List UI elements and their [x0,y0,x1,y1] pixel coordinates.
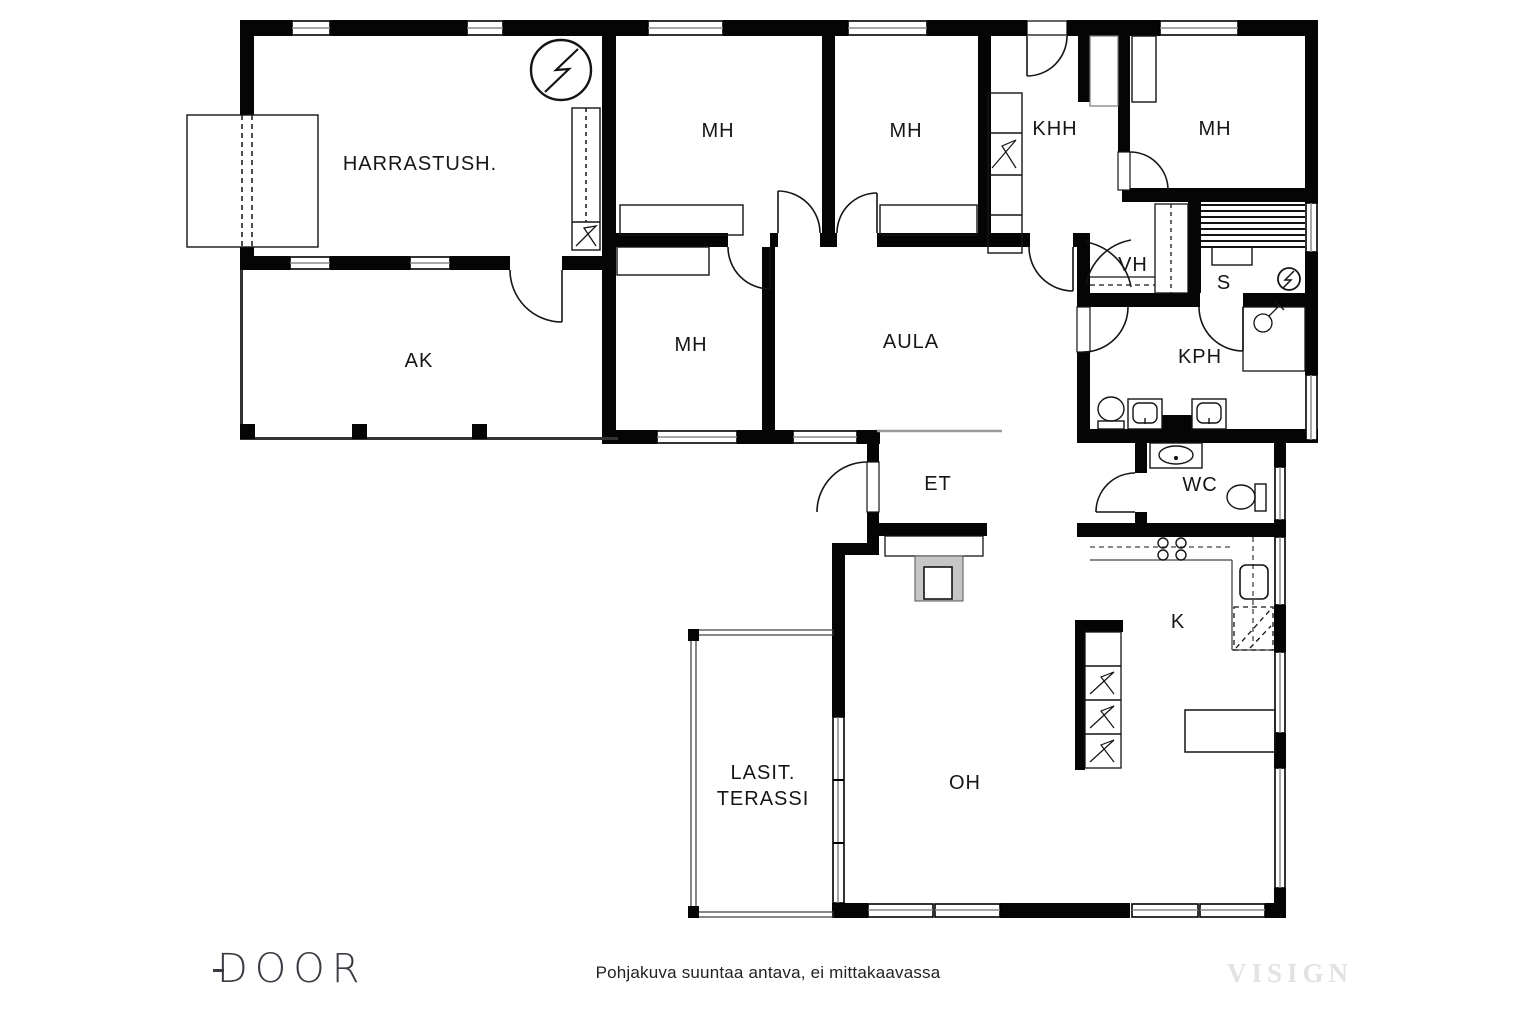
terrace-corner-posts-part [688,629,699,641]
walls-part [978,36,991,233]
walls-part [330,20,467,36]
label-khh: KHH [1032,118,1077,140]
stove-icon-part [1176,550,1186,560]
masonry-heater [1075,620,1123,770]
room-labels: HARRASTUSH. MH MH KHH MH VH S AK MH AULA… [343,118,1232,810]
walls-part [330,256,410,270]
wc-toilet-icon [1227,484,1266,511]
walls-part [1067,20,1160,36]
masonry-heater-part [1090,706,1114,728]
wc-sink-icon-part [1159,446,1193,464]
walls-part [1073,233,1090,247]
masonry-heater-part [1085,632,1121,666]
walls-part [877,523,987,536]
door-et-entrance-part [817,462,867,512]
label-aula: AULA [883,331,939,353]
wc-sink-icon [1150,443,1202,468]
door-mh2-part [837,193,877,233]
fireplace [885,536,983,601]
masonry-heater-part-part [1075,632,1085,770]
door-harrastush-ak-part [510,270,562,322]
walls-part [1188,202,1201,293]
walls-part [1000,903,1130,918]
walls-part [822,36,835,233]
sauna-stove-icon [1278,268,1300,290]
door-kph-part [1077,307,1090,352]
glazed-terrace-part [691,912,833,917]
walls-part [857,430,880,444]
carport-posts-part [240,424,255,439]
walls-part [832,903,868,918]
door-wc-part [1096,473,1135,512]
sauna-stove-icon-part [1283,271,1294,288]
door-wc [1096,473,1135,512]
label-mh2: MH [889,120,922,142]
carport-left-edge [240,270,243,440]
oh-table [1185,710,1275,752]
masonry-heater-part-part [1075,620,1123,632]
stove-icon [1158,538,1186,560]
walls-part [602,20,616,444]
door-sauna [1199,307,1243,351]
chimney-flue [572,108,600,250]
carport-posts-part [352,424,367,439]
wardrobe-mh2 [880,205,977,235]
walls-part [762,247,775,444]
label-ak: AK [405,350,434,372]
khh-appliance-tower-part [992,140,1016,168]
label-terassi-2: TERASSI [717,788,810,810]
sauna-benches [1201,205,1305,265]
label-vh: VH [1118,254,1148,276]
door-khh-aula [1029,247,1073,291]
kph-sink-icon-2 [1192,399,1226,429]
wall-hatch [187,115,318,247]
chimney-flue-part [576,226,596,246]
walls-part [1243,293,1318,307]
wardrobe-mh1 [620,205,743,235]
floorplan-page: HARRASTUSH. MH MH KHH MH VH S AK MH AULA… [0,0,1536,1024]
stove-icon-part [1158,550,1168,560]
door-mh1-part [778,191,820,233]
chimney-flue-part [572,108,600,250]
walls-part [1135,443,1147,473]
walls-part [240,20,254,115]
label-kph: KPH [1178,346,1222,368]
kph-sink-icon-1 [1128,399,1162,429]
walls-part [867,444,879,462]
sauna-benches-part [1212,247,1252,265]
sauna-stove-icon-part [1278,268,1300,290]
visign-watermark: VISIGN [1227,958,1353,989]
label-k: K [1171,611,1185,633]
shower-area-part [1243,307,1305,371]
fireplace-part [924,567,952,599]
khh-exterior-door-opening [1027,21,1067,35]
shower-mixer-icon-part [1254,314,1272,332]
glazed-terrace-part [691,630,696,917]
door-khh-exterior [1027,36,1067,76]
door-khh-aula-part [1029,247,1073,291]
walls-part [1077,523,1286,537]
shower-area [1243,301,1305,371]
walls-part [737,430,793,444]
floorplan-drawing: HARRASTUSH. MH MH KHH MH VH S AK MH AULA… [0,0,1536,1024]
walls-part [1274,888,1286,918]
masonry-heater-part [1090,740,1114,762]
walls-part [1078,36,1090,102]
door-harrastush-ak [510,270,562,322]
door-mh3-part [1118,152,1130,190]
wc-toilet-icon-part [1255,484,1266,511]
electrical-center-icon [531,40,591,100]
masonry-heater-part [1085,734,1121,768]
label-oh: OH [949,772,981,794]
khh-appliance-tower-part [988,93,1022,253]
walls-part [770,233,778,247]
khh-appliance-tower [988,93,1022,253]
walls-part [1274,443,1286,467]
kph-toilet-icon-part [1098,397,1124,421]
label-harrastush: HARRASTUSH. [343,153,497,175]
carport-bottom-edge [240,437,618,440]
door-khh-exterior-part [1027,36,1067,76]
label-wc: WC [1182,474,1217,496]
masonry-heater-part [1085,700,1121,734]
door-kph [1077,307,1128,352]
label-terassi-1: LASIT. [731,762,796,784]
electrical-center-icon-part [545,49,578,92]
walls-part [240,256,290,270]
walls-part [503,20,648,36]
walls-part [1077,352,1090,443]
terrace-corner-posts [688,629,699,918]
label-mh4: MH [674,334,707,356]
label-mh3: MH [1198,118,1231,140]
masonry-heater-part [1075,620,1123,770]
walls-part [1274,605,1286,652]
door-sauna-part [1199,307,1243,351]
walls-part [820,233,837,247]
walls-part [1305,20,1318,203]
walls-part [450,256,510,270]
walls-part [1090,293,1200,307]
label-et: ET [924,473,952,495]
door-mh3-part [1130,152,1168,190]
walls-part [1135,512,1147,523]
label-mh1: MH [701,120,734,142]
door-mh1 [778,191,820,233]
kitchen-counter [1090,537,1274,650]
carport-posts-part [472,424,487,439]
kph-toilet-icon-part [1098,421,1124,429]
carport-posts [240,424,487,439]
masonry-heater-part [1085,666,1121,700]
walls-part [1305,252,1318,375]
door-et-entrance [817,462,879,512]
kph-toilet-icon [1098,397,1124,429]
walls-part [723,20,848,36]
door-mh3 [1118,152,1168,190]
label-s: S [1217,272,1231,294]
walls-part [1122,188,1318,202]
wardrobe-mh4 [617,247,709,275]
walls-part [1274,733,1286,768]
wardrobe-mh3 [1132,36,1156,102]
door-mh2 [837,193,877,233]
wc-sink-icon-part [1175,457,1178,460]
terrace-corner-posts-part [688,906,699,918]
khh-niche [1090,36,1118,106]
walls-part [1162,415,1192,429]
wc-toilet-icon-part [1227,485,1255,509]
walls-part [927,20,1027,36]
kitchen-sink-icon [1240,565,1268,599]
walls-part [1118,36,1130,152]
walls-part [1090,429,1318,443]
fireplace-part [885,536,983,556]
glazed-terrace-part [691,630,833,635]
fixtures [187,36,1305,770]
masonry-heater-part [1090,672,1114,694]
door-et-entrance-part [867,462,879,512]
walls-part [832,543,845,717]
